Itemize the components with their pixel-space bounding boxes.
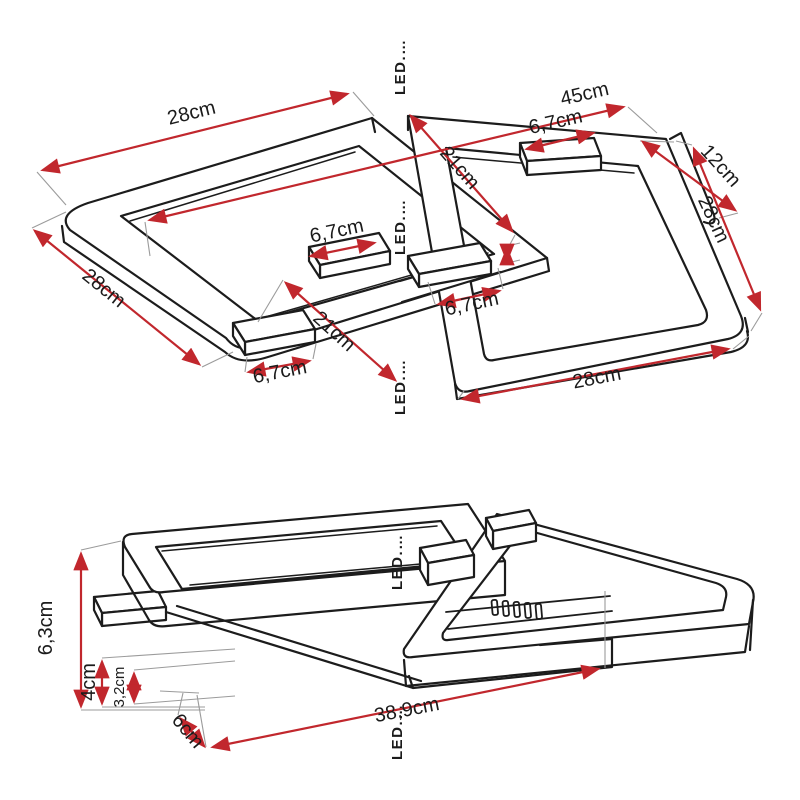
dim-label-389cm: 38,9cm [373,693,442,727]
interlock-tab-a [420,540,474,585]
dim-label-12cm: 12cm [696,140,745,191]
side-view-drawing [94,504,754,688]
dim-label-45cm: 45cm [558,78,611,110]
dim-label-6cm: 6cm [167,710,208,753]
interlock-tab-b [486,510,536,549]
dim-label-32cm: 3,2cm [111,667,128,708]
tab-mid-right [408,243,491,287]
dim-label-4cm: 4cm [78,663,100,701]
dim-label-28cm-left: 28cm [78,264,130,312]
diagram-page: LED.… LED.… LED.… LED.… LED.… [0,0,800,800]
watermark-text: LED.… [389,533,406,590]
dim-label-28cm-top-left: 28cm [165,97,218,130]
tab-top-right [520,138,601,175]
dim-label-63cm: 6,3cm [35,601,57,655]
watermark-text: LED.… [392,38,409,95]
watermark-text: LED.… [392,358,409,415]
side-view-labels: 6,3cm 4cm 3,2cm 6cm 38,9cm [35,601,441,753]
lamp-dimension-diagram: LED.… LED.… LED.… LED.… LED.… [0,0,800,800]
watermark-text: LED.… [392,198,409,255]
dim-label-67cm-botleft: 6,7cm [251,356,309,388]
